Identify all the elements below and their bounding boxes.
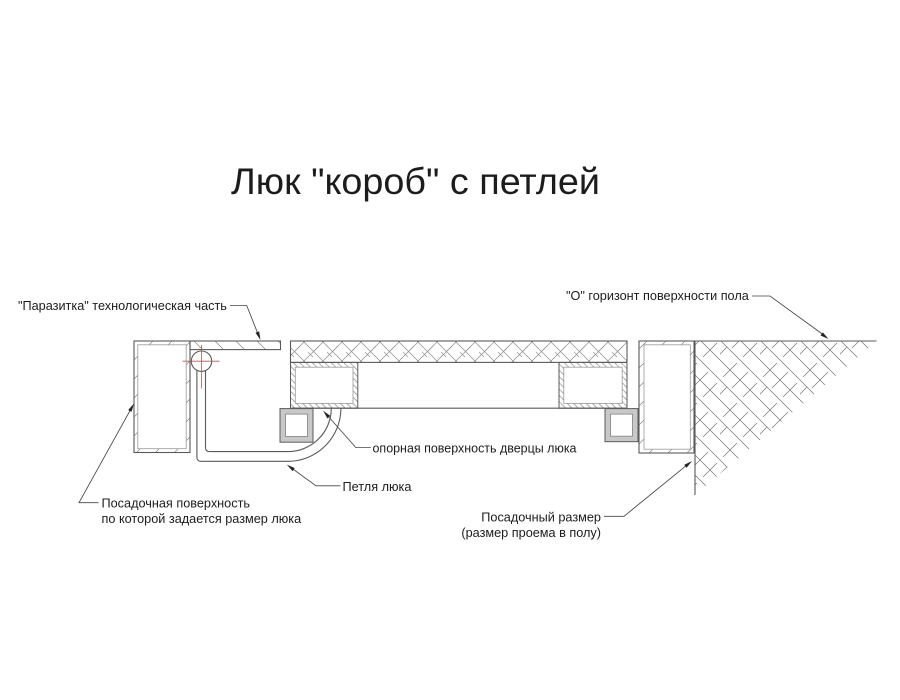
svg-text:Посадочный размер: Посадочный размер — [481, 511, 601, 525]
svg-text:"О" горизонт поверхности пола: "О" горизонт поверхности пола — [566, 289, 750, 303]
svg-text:опорная поверхность дверцы люк: опорная поверхность дверцы люка — [373, 442, 578, 456]
svg-text:(размер проема в полу): (размер проема в полу) — [461, 526, 601, 540]
svg-text:по которой задается размер люк: по которой задается размер люка — [102, 512, 303, 526]
svg-text:Посадочная поверхность: Посадочная поверхность — [102, 496, 251, 510]
svg-text:"Паразитка" технологическая ча: "Паразитка" технологическая часть — [18, 299, 227, 313]
svg-text:Люк "короб" с петлей: Люк "короб" с петлей — [231, 161, 600, 202]
svg-text:Петля люка: Петля люка — [343, 480, 413, 494]
